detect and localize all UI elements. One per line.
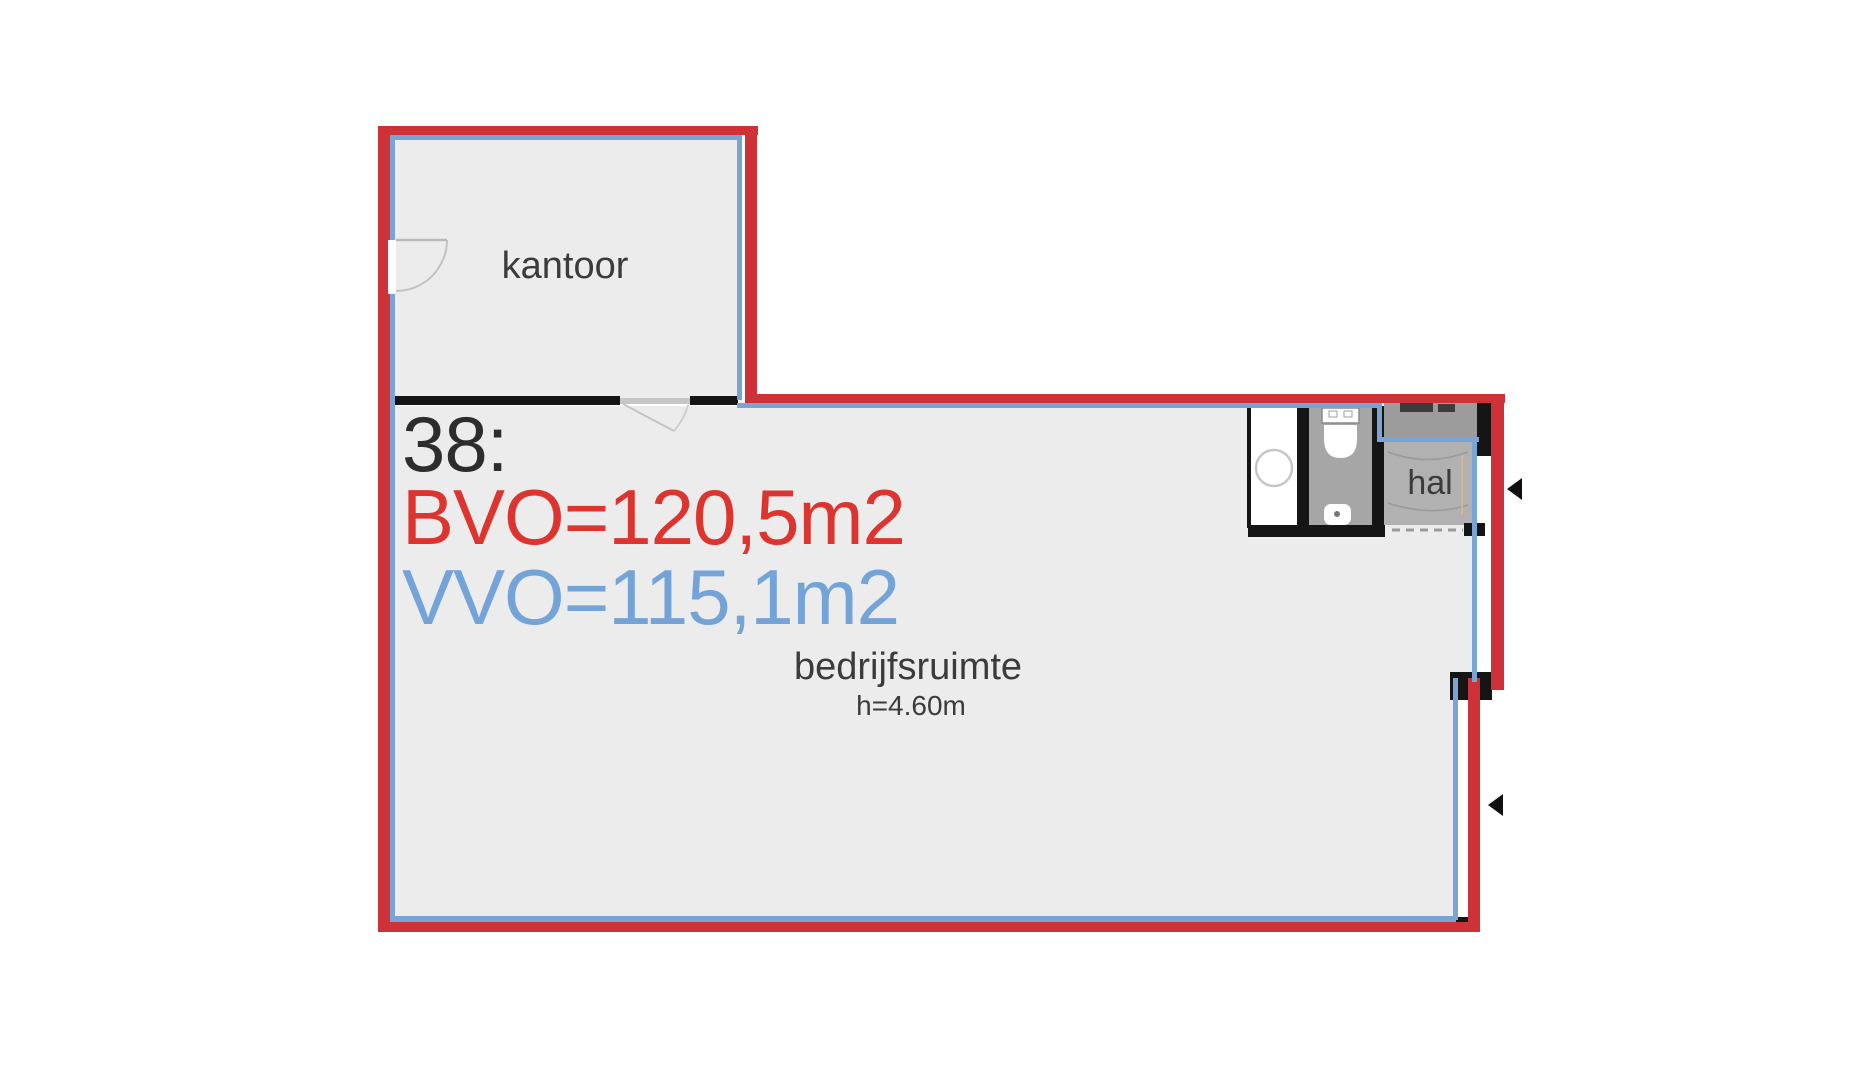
- meter-symbols: [1400, 403, 1455, 412]
- blue-line-kantoor-top: [390, 135, 742, 140]
- meter-glyph-icon: [1438, 404, 1455, 412]
- kantoor-room-label: kantoor: [502, 247, 629, 285]
- drain-dot-icon: [1334, 511, 1340, 517]
- floor-plan-drawing: [0, 0, 1876, 1080]
- cistern-button-icon: [1344, 411, 1352, 417]
- toilet-cistern-icon: [1322, 408, 1359, 423]
- red-wall-bottom: [378, 922, 1480, 932]
- blue-line-right-upper: [1472, 437, 1477, 682]
- red-wall-right-upper: [1491, 394, 1504, 690]
- blue-line-main-top: [737, 403, 1379, 408]
- unit-number-label: 38:: [402, 405, 507, 483]
- red-wall-kantoor-top: [378, 126, 758, 135]
- bedrijfsruimte-room-label: bedrijfsruimte: [794, 648, 1022, 686]
- red-wall-kantoor-right: [745, 126, 757, 403]
- vvo-area-label: VVO=115,1m2: [402, 558, 899, 636]
- closet-toilet-wall: [1297, 407, 1309, 527]
- closet-left-wall: [1247, 406, 1251, 528]
- toilet-bowl-icon: [1324, 425, 1357, 458]
- kantoor-wall-right-segment: [690, 396, 738, 405]
- cistern-button-icon: [1329, 411, 1337, 417]
- entry-arrow-icon: [1507, 478, 1522, 500]
- red-wall-main-top: [745, 394, 1505, 403]
- blue-line-bottom: [390, 916, 1456, 922]
- kantoor-left-door-opening: [388, 240, 396, 294]
- blue-line-kantoor-right: [737, 135, 742, 400]
- hal-room-label: hal: [1407, 466, 1452, 500]
- meter-glyph-icon: [1400, 403, 1433, 412]
- bvo-area-label: BVO=120,5m2: [402, 478, 905, 556]
- boiler-icon: [1256, 450, 1292, 486]
- ceiling-height-label: h=4.60m: [856, 692, 966, 720]
- red-wall-right-lower: [1468, 678, 1480, 932]
- entry-arrow-icon: [1488, 794, 1503, 816]
- floor-plan-canvas: kantoor 38: BVO=120,5m2 VVO=115,1m2 bedr…: [0, 0, 1876, 1080]
- blue-line-meter-bottom: [1377, 437, 1479, 442]
- service-block-bottom-wall: [1248, 525, 1385, 537]
- blue-line-meter-left: [1377, 403, 1382, 441]
- blue-line-right-lower: [1453, 678, 1458, 920]
- kantoor-bottom-door-threshold: [620, 398, 690, 404]
